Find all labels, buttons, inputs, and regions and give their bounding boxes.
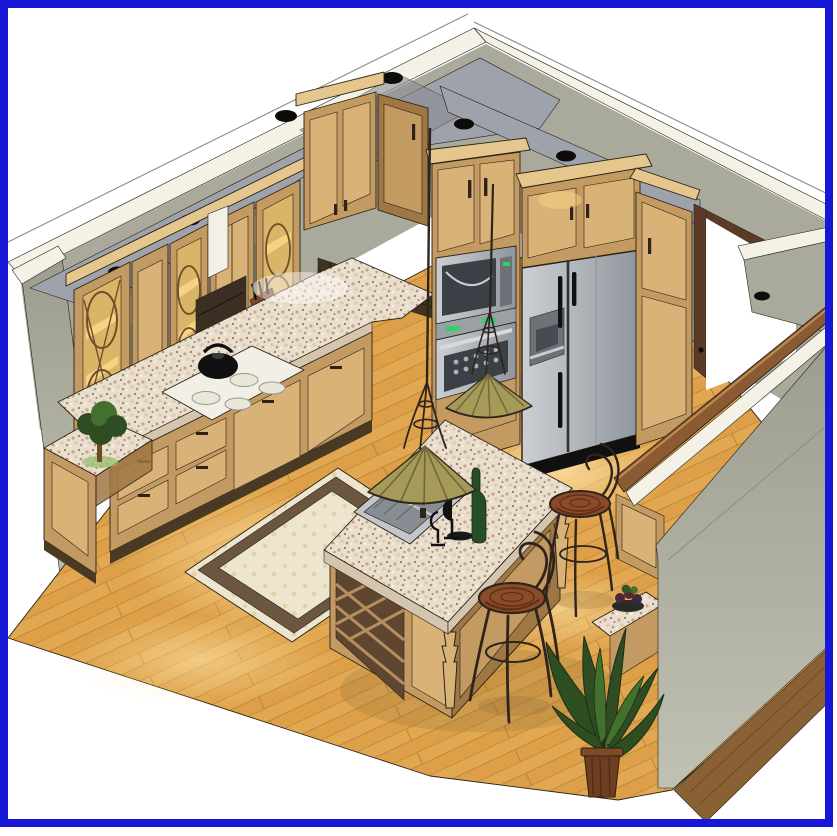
oven-column xyxy=(426,138,530,470)
door-knob xyxy=(698,347,703,352)
upper-cabinet xyxy=(378,94,428,226)
corner-cabinet xyxy=(304,92,376,230)
rendered-screenshot xyxy=(0,0,837,836)
wall-light-can xyxy=(754,292,770,301)
hood-chimney-panel xyxy=(208,206,228,278)
side-by-side-refrigerator xyxy=(522,250,640,480)
kitchen-3d-render xyxy=(0,0,837,836)
